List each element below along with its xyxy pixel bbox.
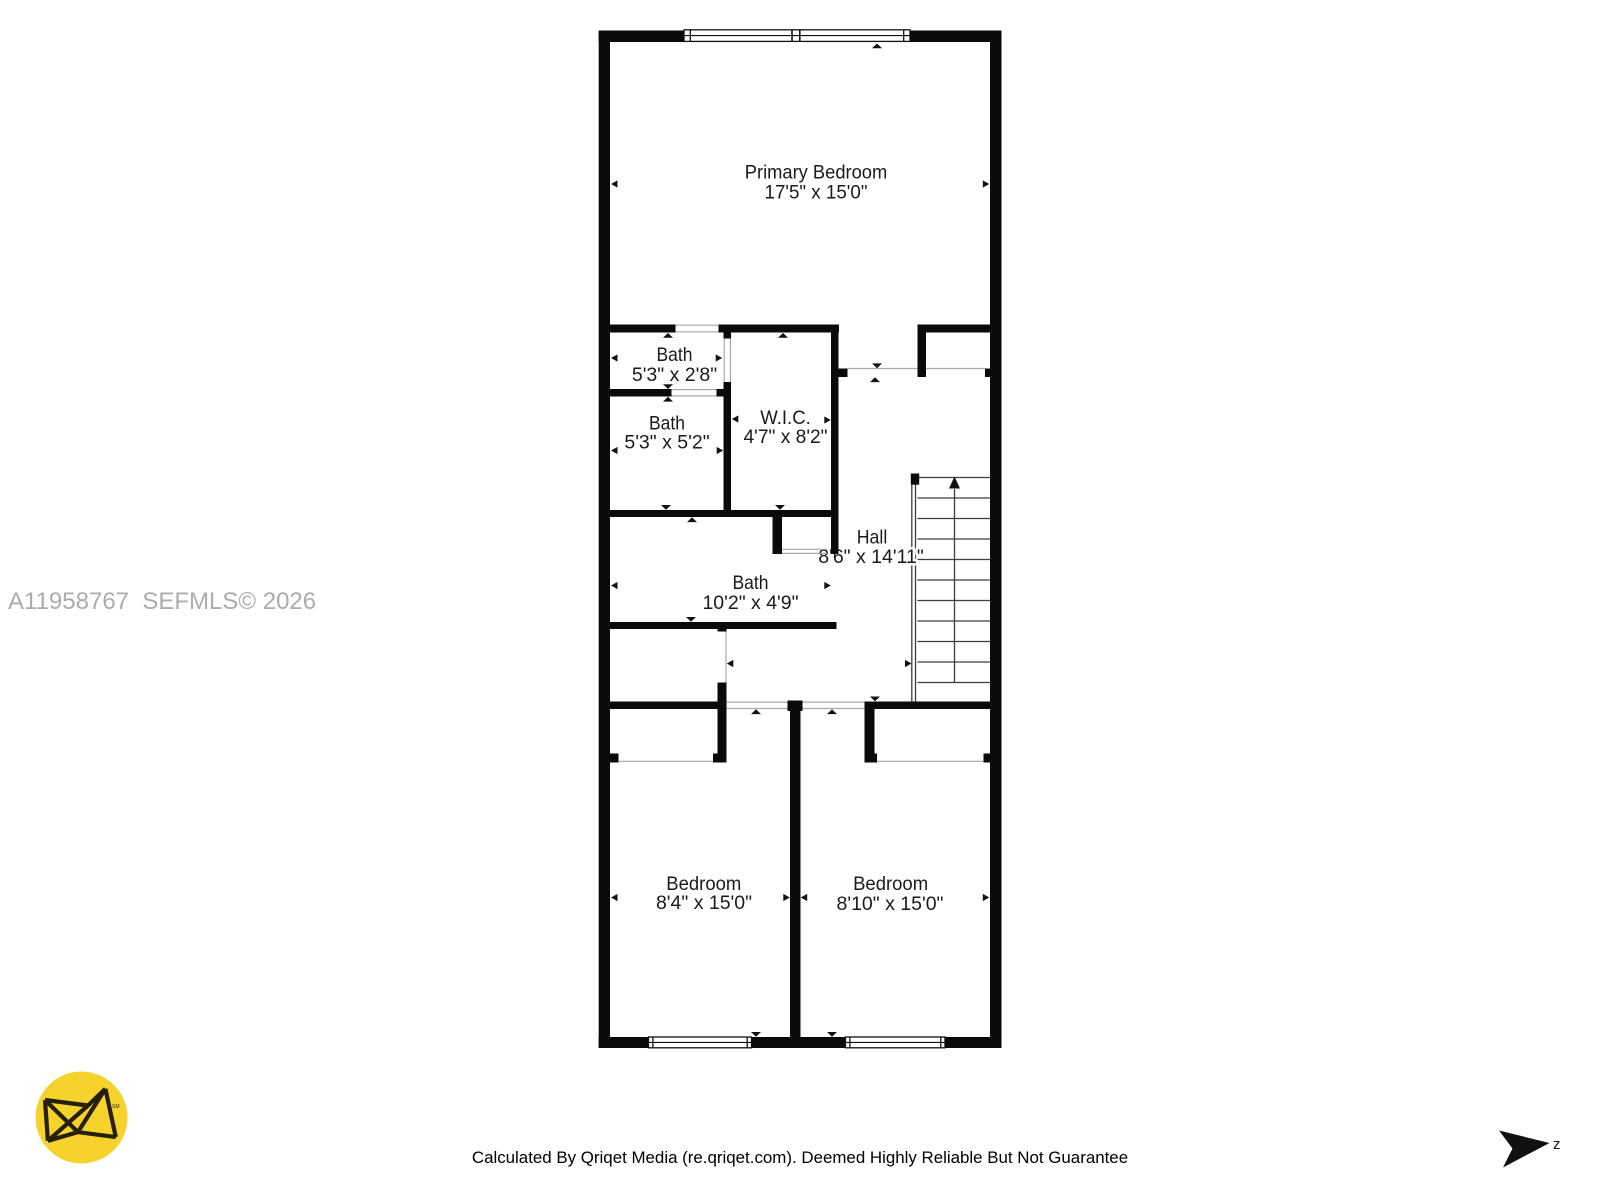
svg-text:17'5" x 15'0": 17'5" x 15'0" [765,182,868,204]
svg-text:4'7" x 8'2": 4'7" x 8'2" [744,426,828,448]
svg-text:Hall: Hall [857,527,888,549]
svg-text:A11958767 SEFMLS© 2026: A11958767 SEFMLS© 2026 [8,588,316,615]
svg-text:5'3" x 5'2": 5'3" x 5'2" [624,431,709,453]
svg-text:z: z [1553,1136,1561,1153]
svg-text:10'2" x 4'9": 10'2" x 4'9" [702,592,798,614]
svg-text:Bath: Bath [733,572,769,594]
svg-text:Bedroom: Bedroom [853,873,928,895]
svg-text:Calculated By Qriqet Media (re: Calculated By Qriqet Media (re.qriqet.co… [472,1148,1128,1167]
svg-text:8'10" x 15'0": 8'10" x 15'0" [837,893,944,915]
svg-text:5'3" x 2'8": 5'3" x 2'8" [632,364,717,386]
svg-text:8'4" x 15'0": 8'4" x 15'0" [656,892,752,914]
svg-text:SM: SM [112,1104,120,1110]
svg-text:Primary Bedroom: Primary Bedroom [745,162,888,184]
svg-text:Bath: Bath [657,344,693,366]
